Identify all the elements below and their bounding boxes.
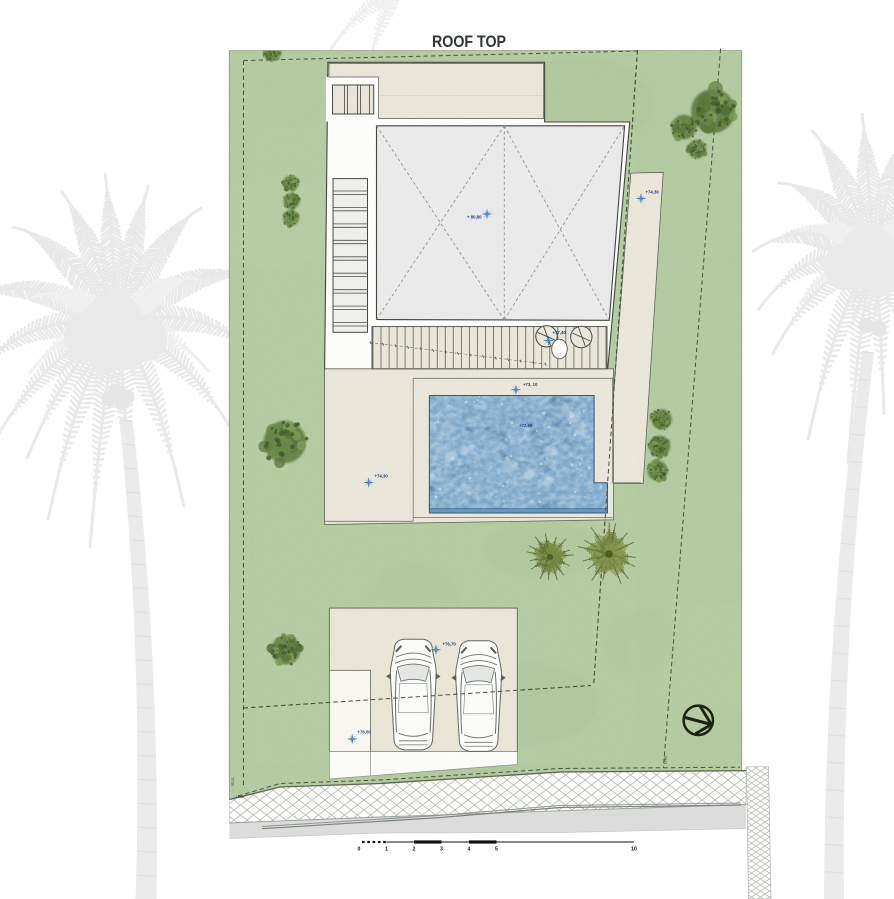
svg-text:35,01: 35,01 [231,777,235,786]
svg-text:4: 4 [468,847,471,853]
svg-text:ROOF TOP: ROOF TOP [432,32,506,51]
svg-text:+77,40: +77,40 [553,330,567,335]
svg-text:5: 5 [495,847,498,853]
svg-text:Linde: Linde [236,795,244,799]
svg-text:+76,70: +76,70 [443,642,457,647]
svg-text:+72,60: +72,60 [519,423,533,428]
svg-text:3: 3 [440,847,443,853]
svg-text:+74,30: +74,30 [375,474,389,479]
svg-text:0: 0 [358,847,361,853]
svg-text:+73, 10: +73, 10 [523,382,538,387]
svg-text:1: 1 [385,847,388,853]
svg-text:2: 2 [413,847,416,853]
svg-text:+ 80,80: + 80,80 [467,215,482,220]
svg-text:+76,00: +76,00 [358,730,372,735]
svg-text:Linde: Linde [664,756,668,764]
svg-text:+74,30: +74,30 [646,190,660,195]
svg-text:10: 10 [631,847,637,853]
